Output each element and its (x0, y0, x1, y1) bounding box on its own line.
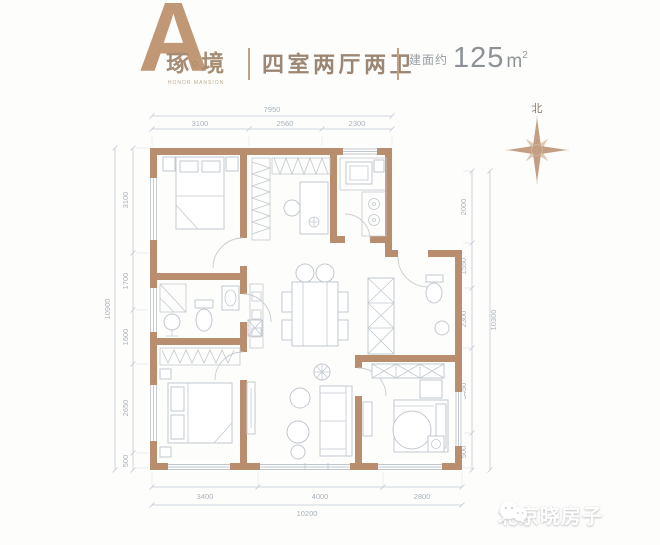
dim-bottom-total: 10200 (297, 509, 318, 518)
dim-bottom-seg: 2800 (414, 492, 431, 501)
dim-bottom-seg: 4000 (312, 492, 329, 501)
floorplan-page: A 琢◦境 HONOR MANSION 四室两厅两卫 建面约 125 m 2 7… (0, 0, 660, 545)
dim-top-seg: 2560 (277, 119, 294, 128)
dim-left-seg: 2650 (121, 400, 130, 417)
dim-bottom-seg: 3400 (197, 492, 214, 501)
dim-left-seg: 1700 (121, 273, 130, 290)
dimension-right: 2000 1550 2300 3450 500 10300 (459, 169, 498, 473)
dimension-top: 7950 3100 2560 2300 (150, 105, 395, 132)
dimension-left: 3100 1700 1600 2650 500 10900 (103, 146, 136, 473)
watermark: 北京晓房子 (498, 500, 603, 529)
dim-top-seg: 3100 (192, 119, 209, 128)
dining-furniture (250, 264, 348, 348)
dim-right-total: 10300 (489, 310, 498, 331)
dim-left-seg: 500 (121, 455, 130, 468)
bathroom2-fixtures (426, 275, 449, 335)
wechat-icon (498, 500, 528, 524)
dim-top-seg: 2300 (349, 119, 366, 128)
closet-study-furniture (252, 158, 330, 240)
kitchen-furniture (340, 158, 386, 236)
dim-left-total: 10900 (103, 299, 112, 320)
compass-rose-icon (505, 116, 569, 184)
bedroom3-furniture (363, 364, 448, 452)
dim-top-total: 7950 (264, 105, 281, 114)
bathroom1-fixtures (160, 284, 239, 336)
dim-left-seg: 1600 (121, 329, 130, 346)
hall-cabinet (368, 278, 394, 354)
floorplan-drawing: 7950 3100 2560 2300 3400 4000 2800 10200… (0, 0, 660, 545)
living-room-furniture (247, 364, 352, 459)
master-bedroom-furniture (163, 157, 238, 229)
dim-right-seg: 2000 (459, 199, 468, 216)
dim-left-seg: 3100 (121, 192, 130, 209)
dimension-bottom: 3400 4000 2800 10200 (150, 485, 465, 519)
compass: 北 (505, 102, 569, 184)
bedroom2-furniture (160, 348, 240, 457)
compass-north-label: 北 (532, 102, 543, 115)
